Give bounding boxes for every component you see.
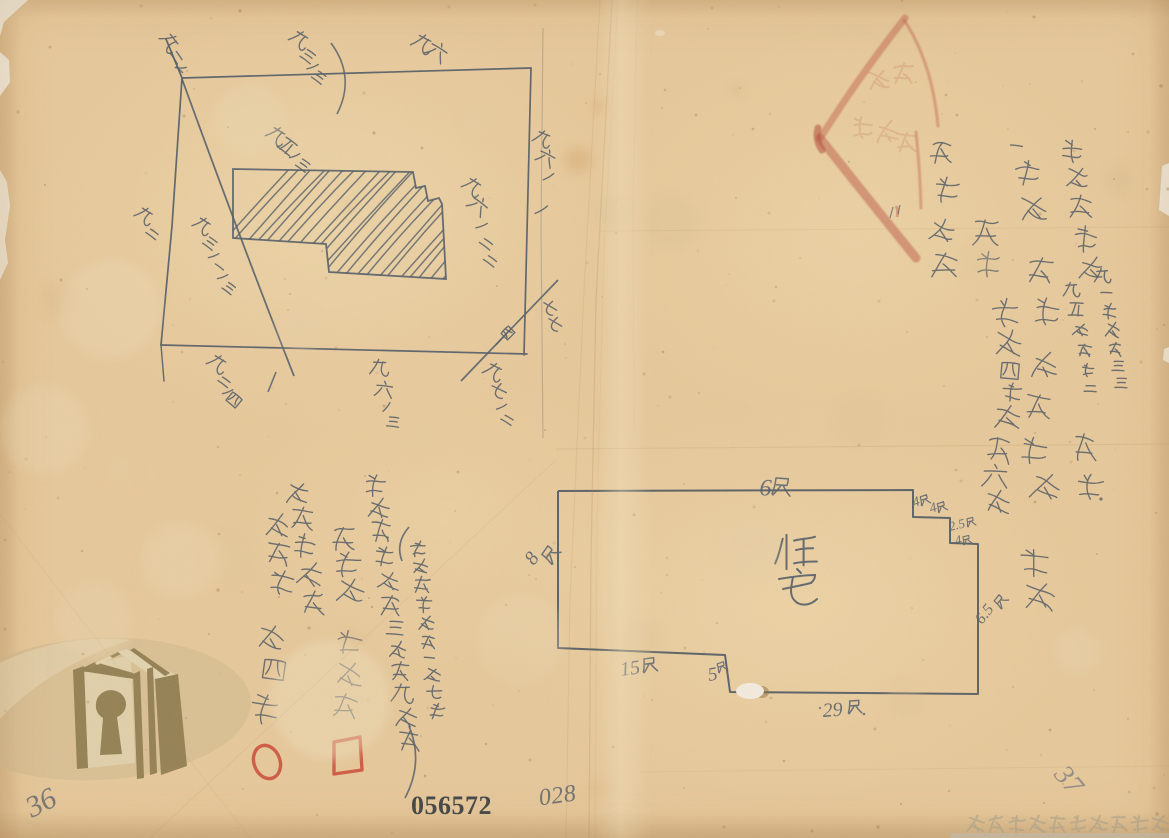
svg-text:8: 8 [520,548,544,569]
svg-text:4: 4 [953,532,963,548]
svg-text:028: 028 [537,780,578,811]
svg-text:15: 15 [619,656,642,681]
svg-text:056572: 056572 [411,791,492,820]
svg-text:4: 4 [928,500,939,516]
svg-text:2.5: 2.5 [947,515,967,534]
svg-text:36: 36 [19,781,62,824]
svg-text:6: 6 [759,475,773,502]
svg-text:37: 37 [1047,759,1090,802]
svg-text:6.5: 6.5 [972,601,998,627]
svg-text:29: 29 [822,699,843,722]
svg-text:5: 5 [706,664,719,686]
svg-text:4: 4 [911,494,922,510]
